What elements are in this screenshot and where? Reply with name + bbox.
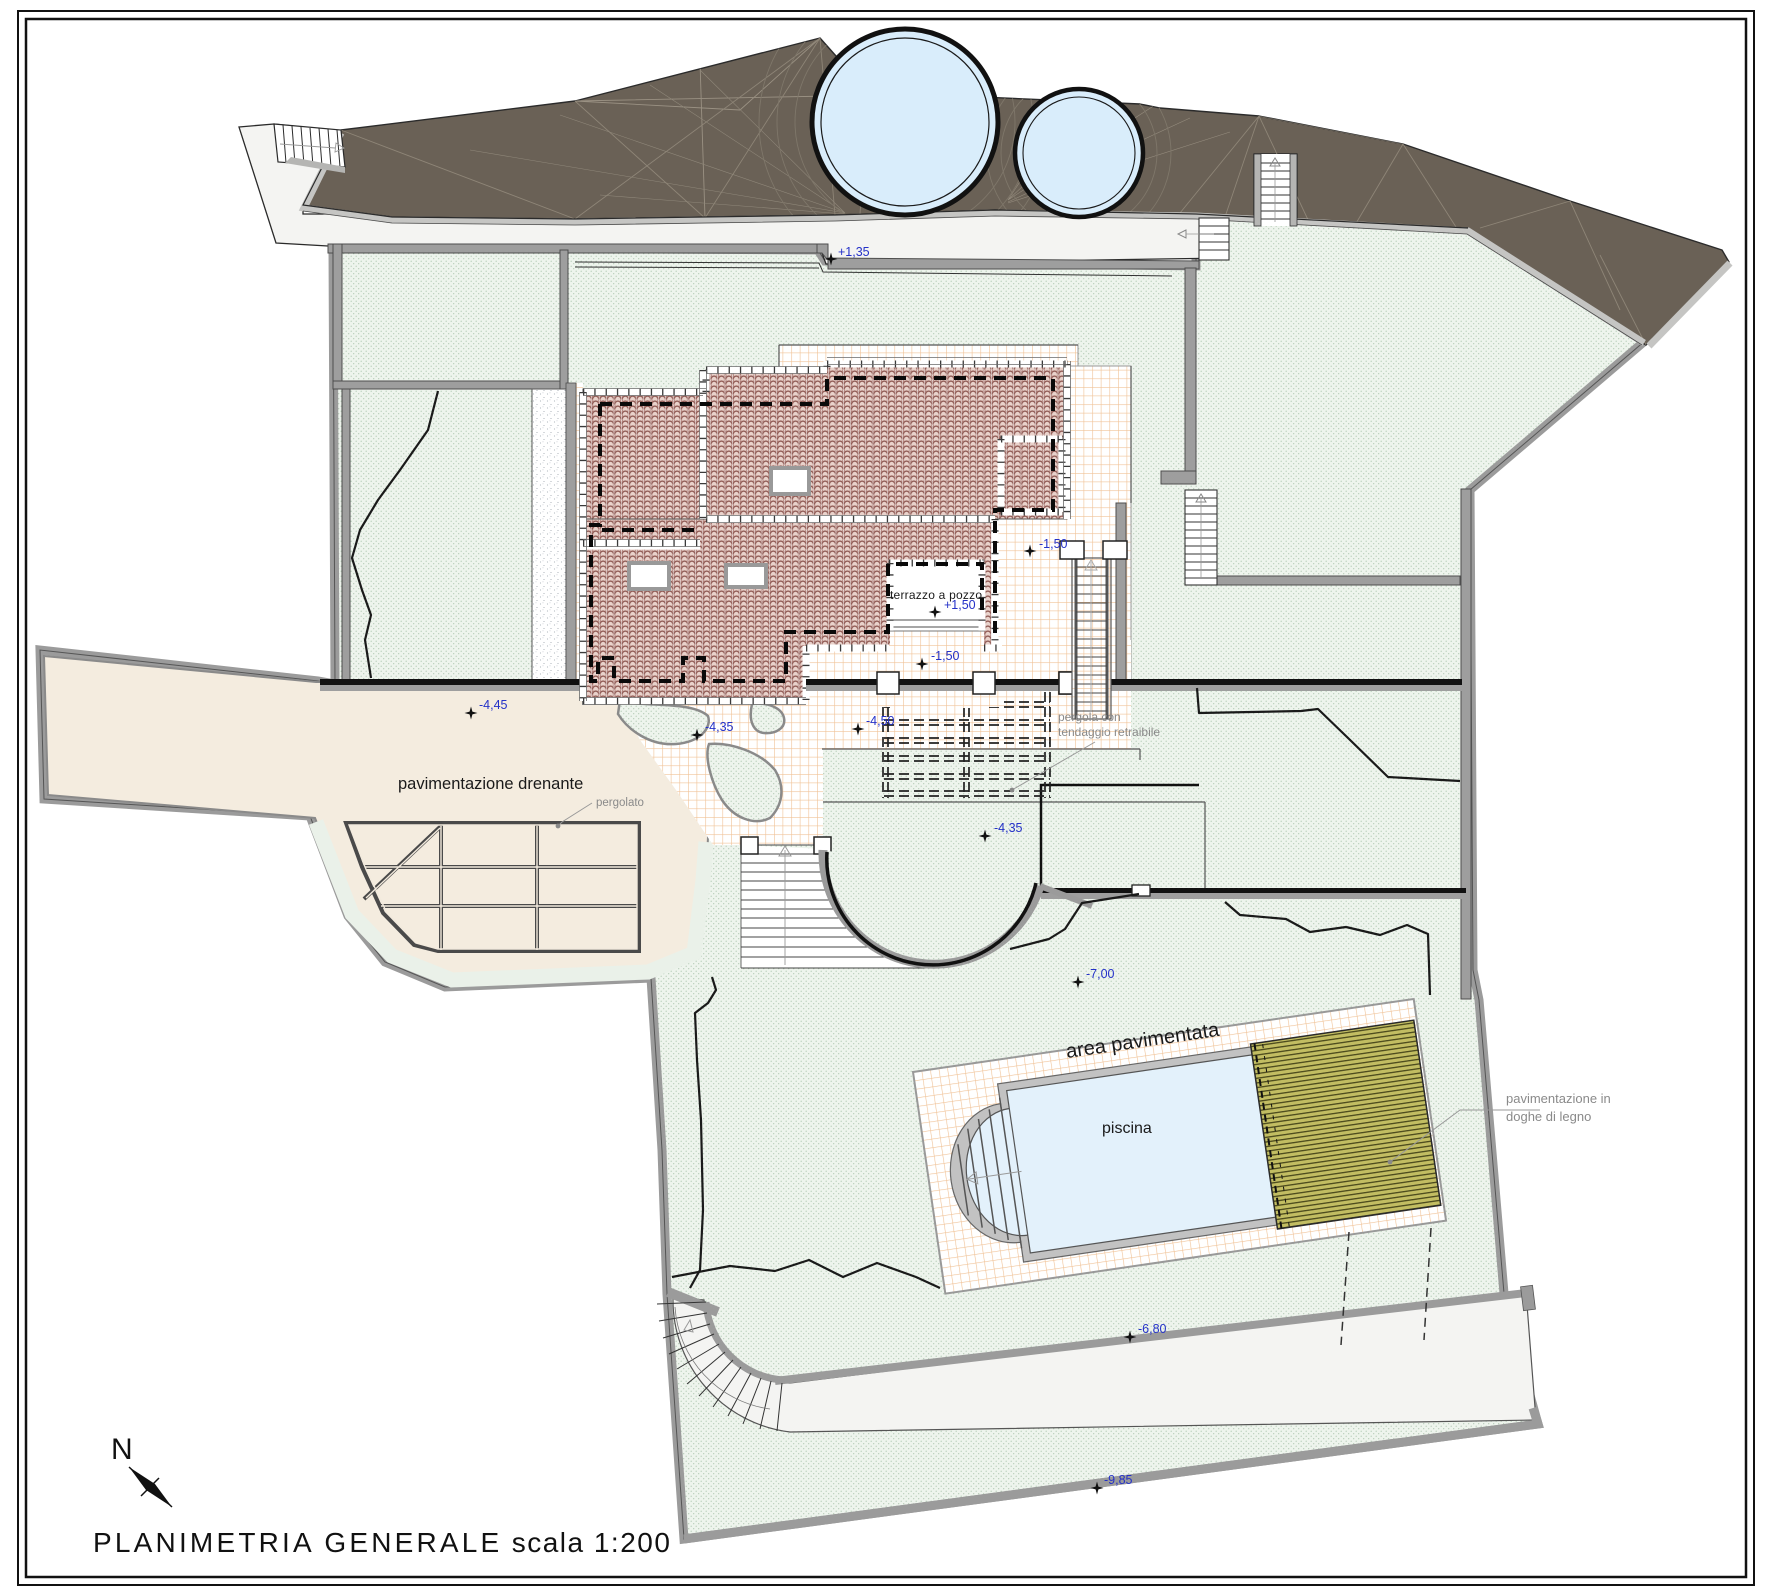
svg-text:-7,00: -7,00 [1086, 967, 1115, 981]
svg-text:PLANIMETRIA GENERALE scala 1:2: PLANIMETRIA GENERALE scala 1:200 [93, 1527, 671, 1558]
svg-text:-4,35: -4,35 [705, 720, 734, 734]
svg-text:-4,50: -4,50 [866, 714, 895, 728]
svg-text:-1,50: -1,50 [931, 649, 960, 663]
svg-text:pavimentazione in: pavimentazione in [1506, 1091, 1611, 1106]
svg-text:+1,35: +1,35 [838, 245, 870, 259]
svg-text:pergola con: pergola con [1058, 710, 1121, 724]
svg-text:tendaggio retraibile: tendaggio retraibile [1058, 725, 1160, 739]
svg-text:-1,50: -1,50 [1039, 537, 1068, 551]
svg-text:piscina: piscina [1102, 1120, 1152, 1137]
svg-text:pergolato: pergolato [596, 797, 644, 809]
svg-text:-6,80: -6,80 [1138, 1322, 1167, 1336]
svg-text:-4,45: -4,45 [479, 698, 508, 712]
svg-text:terrazzo a pozzo: terrazzo a pozzo [890, 588, 982, 602]
svg-text:-9,85: -9,85 [1104, 1473, 1133, 1487]
svg-text:N: N [111, 1433, 133, 1466]
svg-text:pavimentazione drenante: pavimentazione drenante [398, 775, 583, 793]
svg-text:-4,35: -4,35 [994, 821, 1023, 835]
svg-text:doghe di legno: doghe di legno [1506, 1109, 1591, 1124]
